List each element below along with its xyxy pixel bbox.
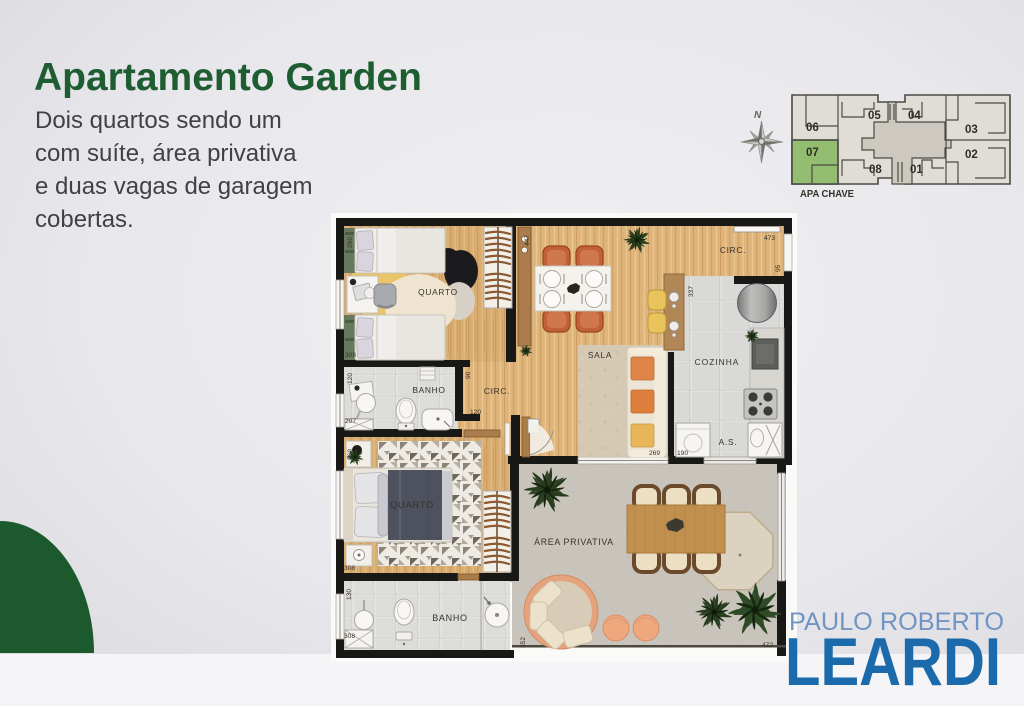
svg-text:BANHO: BANHO xyxy=(432,613,468,623)
svg-text:N: N xyxy=(754,110,762,121)
svg-text:269: 269 xyxy=(649,450,660,457)
svg-text:Apartamento Garden: Apartamento Garden xyxy=(34,56,422,99)
svg-text:337: 337 xyxy=(688,286,695,297)
svg-text:472: 472 xyxy=(762,642,773,649)
svg-text:352: 352 xyxy=(520,637,527,648)
svg-text:06: 06 xyxy=(806,122,819,134)
svg-text:120: 120 xyxy=(470,409,481,416)
svg-text:07: 07 xyxy=(806,147,819,159)
svg-text:02: 02 xyxy=(965,149,978,161)
svg-text:90: 90 xyxy=(465,371,472,379)
svg-text:CIRC.: CIRC. xyxy=(484,386,510,396)
svg-text:Dois quartos sendo um: Dois quartos sendo um xyxy=(35,107,282,134)
svg-text:e duas vagas de garagem: e duas vagas de garagem xyxy=(35,173,313,200)
svg-text:260: 260 xyxy=(347,237,354,248)
svg-text:QUARTO: QUARTO xyxy=(390,499,434,510)
svg-text:308: 308 xyxy=(344,565,355,572)
svg-text:130: 130 xyxy=(346,589,353,600)
svg-text:COZINHA: COZINHA xyxy=(695,357,740,367)
svg-text:95: 95 xyxy=(775,264,782,272)
svg-text:308: 308 xyxy=(344,633,355,640)
svg-text:QUARTO: QUARTO xyxy=(418,287,458,297)
svg-text:SALA: SALA xyxy=(588,350,612,360)
svg-text:04: 04 xyxy=(908,110,921,122)
svg-text:260: 260 xyxy=(347,449,354,460)
svg-text:com suíte, área privativa: com suíte, área privativa xyxy=(35,140,297,167)
svg-text:APA CHAVE: APA CHAVE xyxy=(800,189,854,200)
svg-text:LEARDI: LEARDI xyxy=(785,624,1001,700)
svg-text:190: 190 xyxy=(677,450,688,457)
svg-text:05: 05 xyxy=(868,110,881,122)
svg-text:447: 447 xyxy=(524,235,531,246)
svg-text:cobertas.: cobertas. xyxy=(35,206,134,233)
svg-text:A.S.: A.S. xyxy=(719,437,738,447)
svg-text:473: 473 xyxy=(764,235,775,242)
svg-text:08: 08 xyxy=(869,164,882,176)
svg-text:03: 03 xyxy=(965,124,978,136)
svg-text:01: 01 xyxy=(910,164,923,176)
svg-text:ÁREA PRIVATIVA: ÁREA PRIVATIVA xyxy=(534,537,614,547)
svg-text:308: 308 xyxy=(345,352,356,359)
svg-text:BANHO: BANHO xyxy=(412,385,445,395)
svg-text:120: 120 xyxy=(347,373,354,384)
svg-text:CIRC.: CIRC. xyxy=(720,245,746,255)
svg-text:207: 207 xyxy=(345,418,356,425)
